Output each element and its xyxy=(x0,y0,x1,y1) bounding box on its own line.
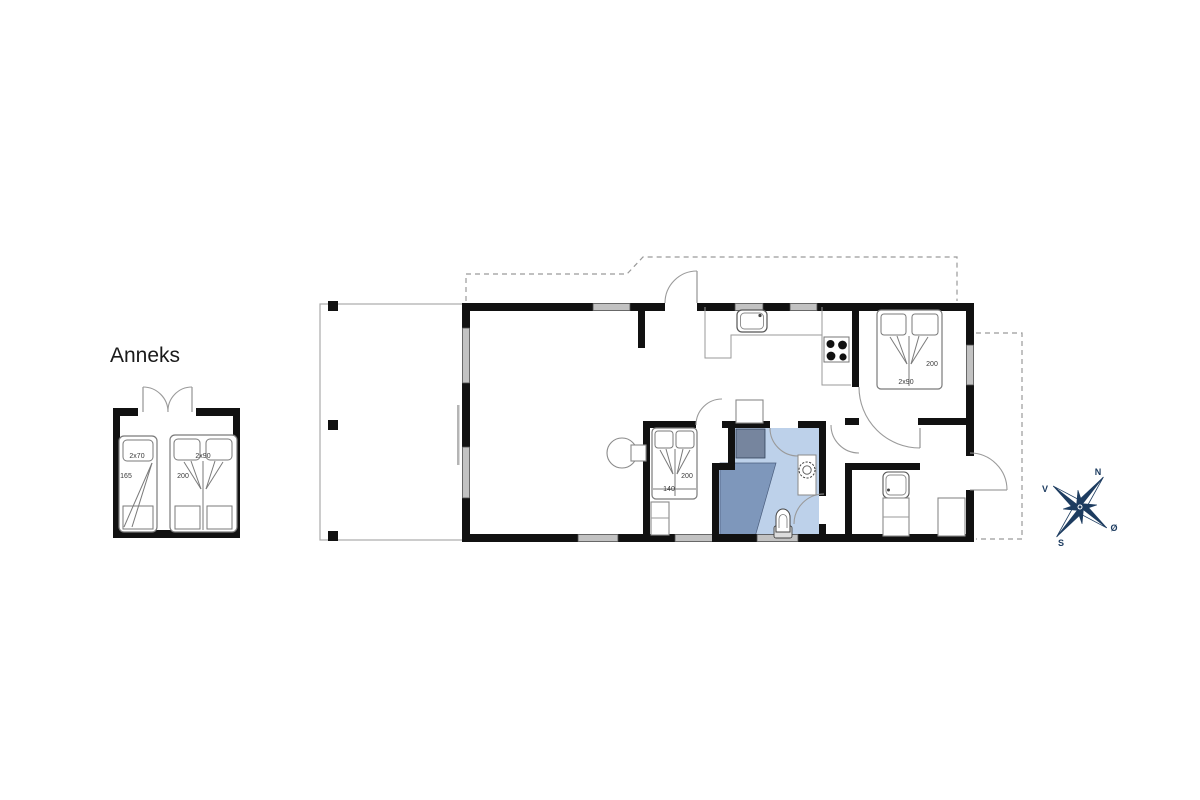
floor-plan-canvas: Anneks 2x70 165 xyxy=(0,0,1200,800)
terrace-post xyxy=(328,531,338,541)
window xyxy=(967,345,974,385)
wash-basin xyxy=(798,455,816,495)
bed-size-label: 2x90 xyxy=(898,379,913,386)
annex-title: Anneks xyxy=(110,344,180,367)
shower-cabin xyxy=(736,429,765,458)
bed-length-label: 200 xyxy=(681,473,693,480)
terrace xyxy=(320,301,466,541)
window xyxy=(790,304,817,311)
utility-room xyxy=(883,472,965,536)
utility-sink xyxy=(883,472,909,498)
bed: 200 140 xyxy=(652,428,697,499)
bed-width-label: 140 xyxy=(663,486,675,493)
hallway-door-arc xyxy=(831,425,859,453)
kitchen xyxy=(705,307,851,385)
annex-bed-double-size-label: 2x90 xyxy=(195,453,210,460)
round-table xyxy=(607,438,646,468)
exterior-sliding-panel xyxy=(457,405,460,465)
window xyxy=(463,328,470,383)
annex-building: Anneks 2x70 165 xyxy=(110,344,240,538)
window xyxy=(578,535,618,542)
terrace-post xyxy=(328,420,338,430)
floor-plan-page: Anneks 2x70 165 xyxy=(0,0,1200,800)
annex-bed-small-length-label: 165 xyxy=(120,473,132,480)
bedroom-right: 200 2x90 xyxy=(877,310,942,389)
bedroom-right-door-arc xyxy=(859,387,920,448)
wardrobe xyxy=(651,502,669,535)
stove xyxy=(824,337,849,362)
window xyxy=(593,304,630,311)
toilet xyxy=(774,509,792,538)
annex-door xyxy=(143,387,192,412)
annex-bed-double-length-label: 200 xyxy=(177,473,189,480)
annex-bed-small: 2x70 165 xyxy=(119,436,157,532)
kitchen-sink xyxy=(737,310,767,332)
annex-bed-double: 2x90 200 xyxy=(170,435,237,532)
entrance-door xyxy=(665,271,697,303)
bed-length-label: 200 xyxy=(926,361,938,368)
compass-south-label: S xyxy=(1058,538,1064,548)
bedroom-middle-door-arc xyxy=(696,399,722,425)
side-exit-door xyxy=(970,453,1007,490)
window xyxy=(675,535,715,542)
utility-counter xyxy=(938,498,965,536)
compass-west-label: V xyxy=(1042,484,1048,494)
compass-rose: N V S Ø xyxy=(1030,456,1130,558)
compass-north-label: N xyxy=(1095,467,1102,477)
bed: 200 2x90 xyxy=(877,310,942,389)
compass-east-label: Ø xyxy=(1110,523,1117,533)
hall-cabinet xyxy=(736,400,763,423)
bedroom-middle: 200 140 xyxy=(651,428,697,535)
annex-bed-small-size-label: 2x70 xyxy=(129,453,144,460)
window xyxy=(463,447,470,498)
terrace-post xyxy=(328,301,338,311)
